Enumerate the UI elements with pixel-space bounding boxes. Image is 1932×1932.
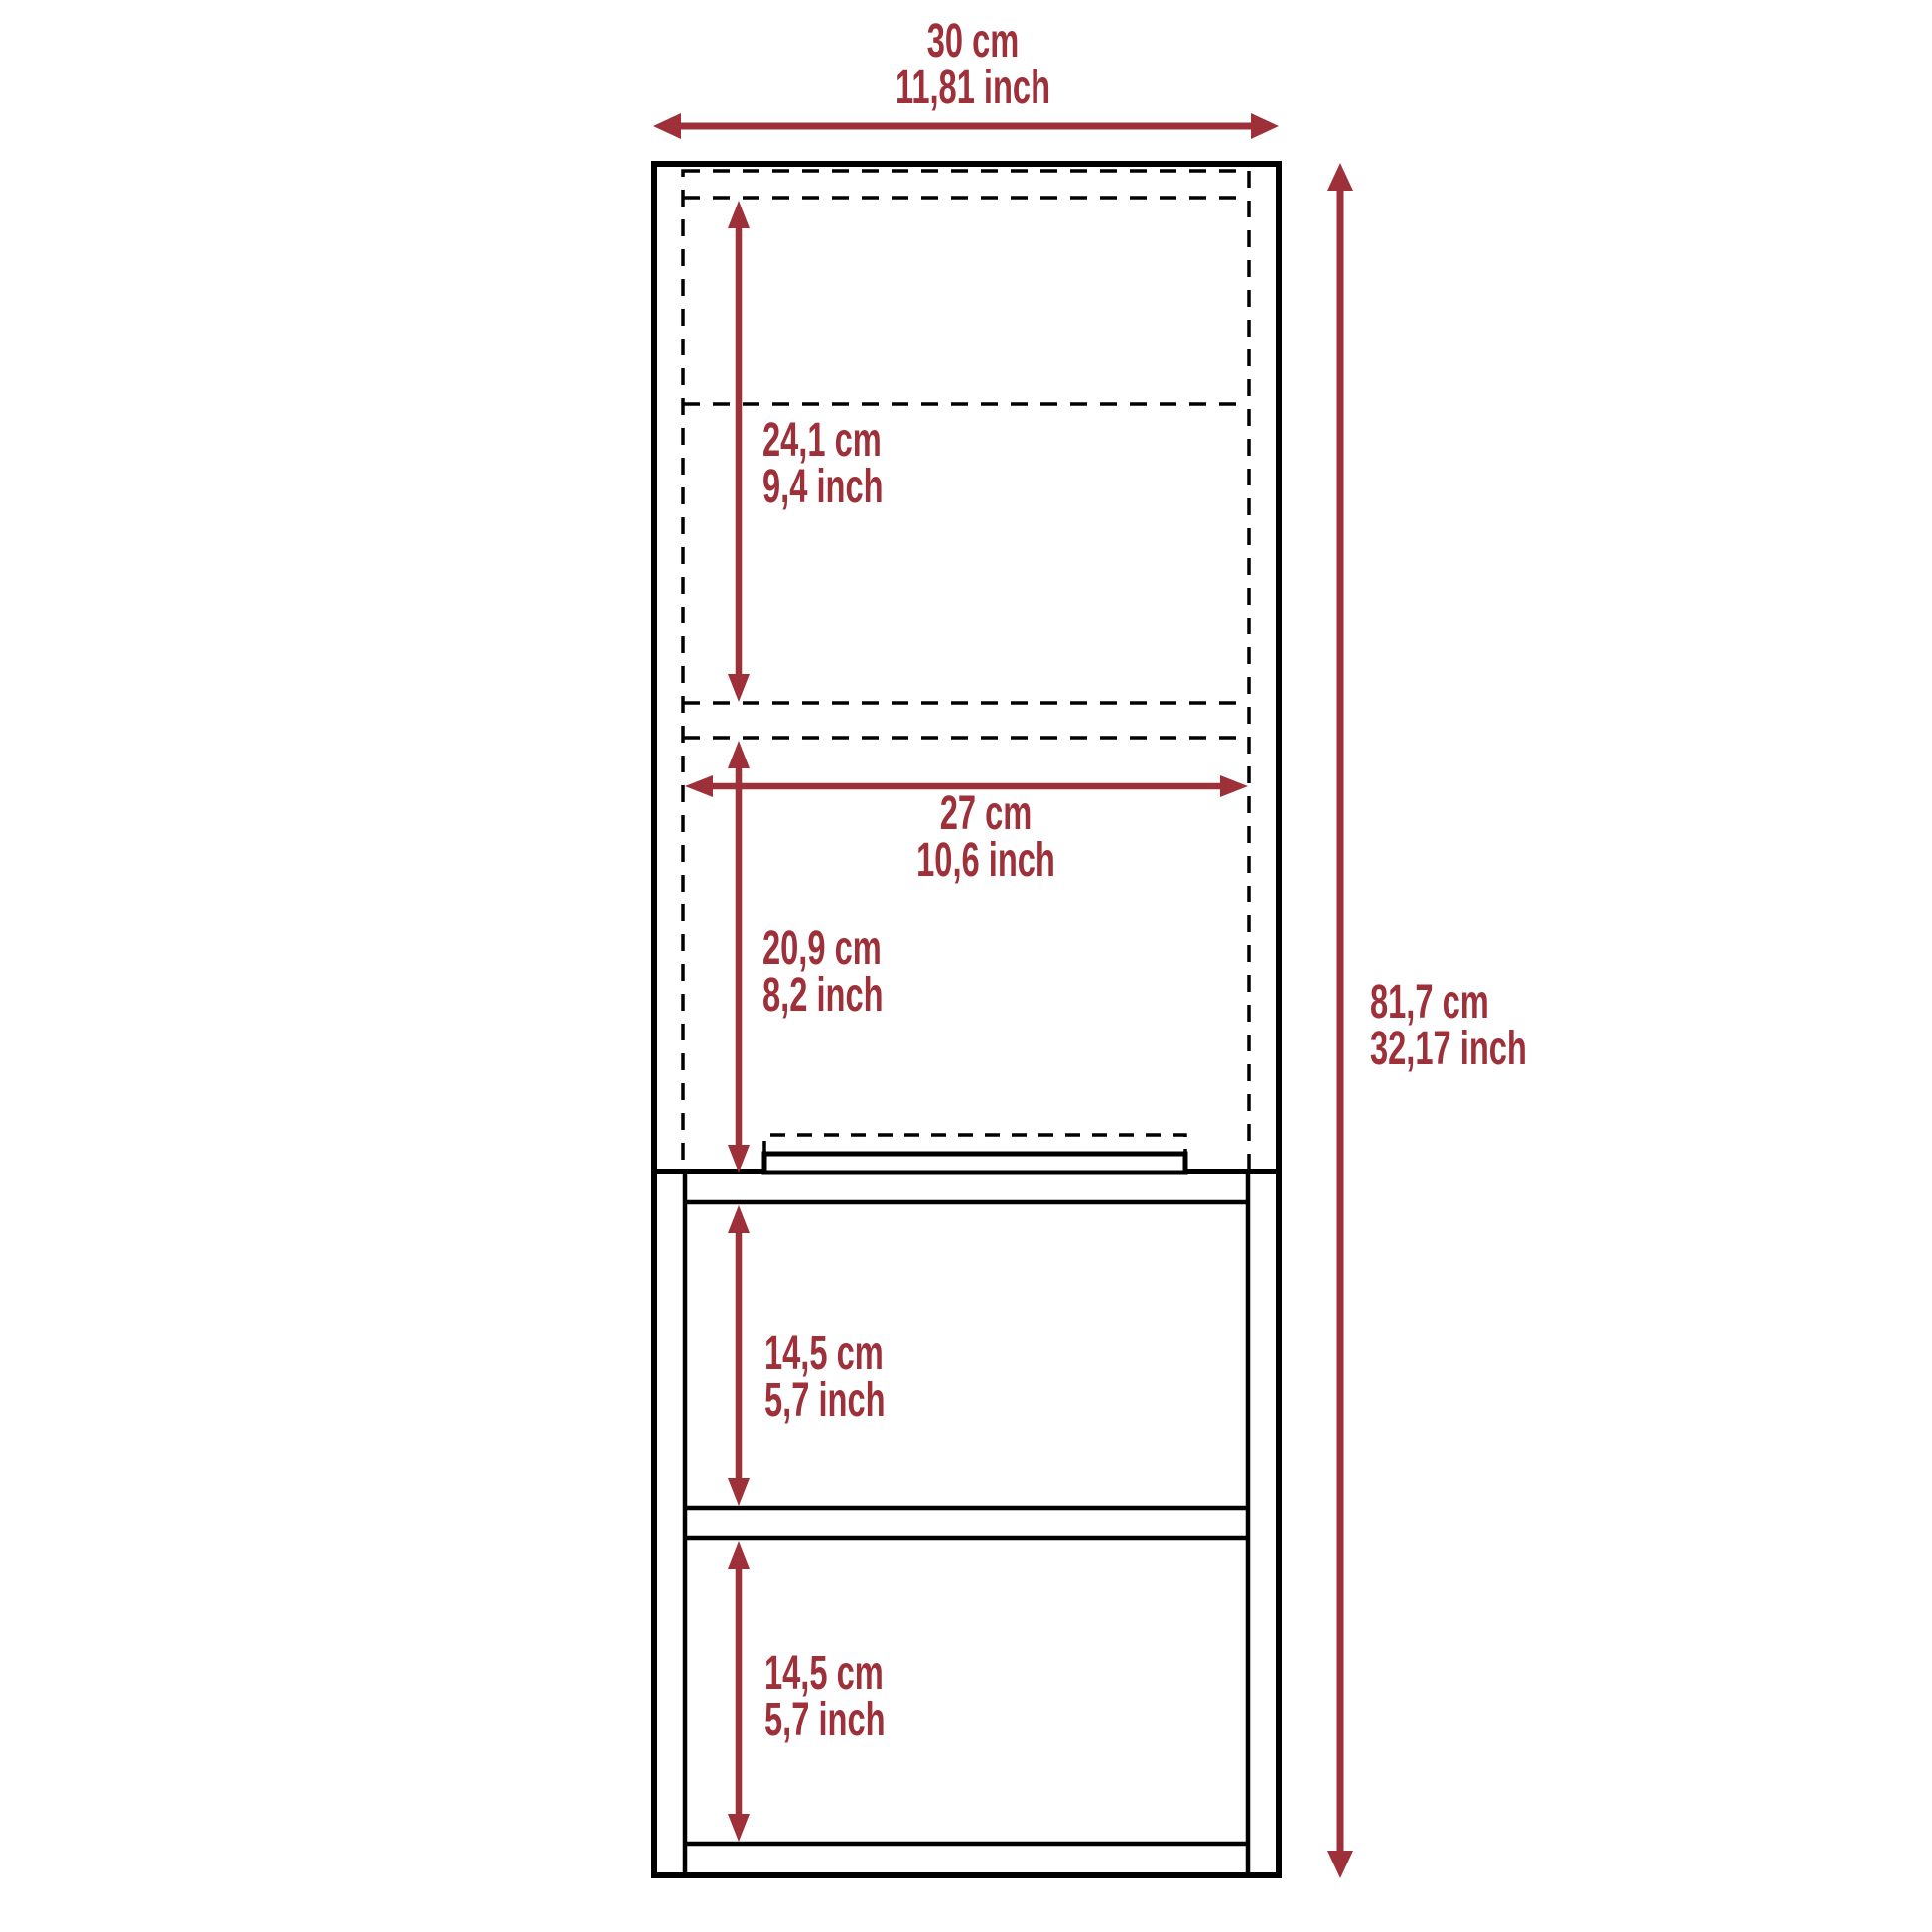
door-section-cm: 20,9 cm — [762, 925, 884, 972]
overall-width-cm: 30 cm — [896, 18, 1050, 65]
upper-shelf-inch: 5,7 inch — [764, 1377, 886, 1424]
inner-width-cm: 27 cm — [916, 790, 1055, 837]
lower-shelf-arrow — [728, 1541, 750, 1842]
overall-height-label: 81,7 cm 32,17 inch — [1370, 979, 1527, 1072]
overall-height-inch: 32,17 inch — [1370, 1026, 1527, 1072]
door-section-arrow — [728, 741, 750, 1173]
inner-width-inch: 10,6 inch — [916, 837, 1055, 884]
lower-shelf-cm: 14,5 cm — [764, 1650, 886, 1697]
upper-shelf-height-label: 14,5 cm 5,7 inch — [764, 1330, 886, 1424]
door-handle — [764, 1154, 1185, 1173]
inner-width-label: 27 cm 10,6 inch — [916, 790, 1055, 884]
upper-shelf-cm: 14,5 cm — [764, 1330, 886, 1377]
lower-shelf-inch: 5,7 inch — [764, 1697, 886, 1743]
upper-shelf-arrow — [728, 1205, 750, 1506]
width-arrow — [653, 113, 1279, 139]
door-section-height-label: 20,9 cm 8,2 inch — [762, 925, 884, 1019]
overall-height-cm: 81,7 cm — [1370, 979, 1527, 1026]
overall-width-label: 30 cm 11,81 inch — [896, 18, 1050, 111]
height-arrow — [1327, 163, 1353, 1878]
dimension-diagram: 30 cm 11,81 inch 24,1 cm 9,4 inch 27 cm … — [0, 0, 1932, 1932]
cabinet-line-drawing — [0, 0, 1932, 1932]
upper-section-height-label: 24,1 cm 9,4 inch — [762, 417, 884, 510]
door-section-inch: 8,2 inch — [762, 972, 884, 1019]
upper-section-inch: 9,4 inch — [762, 464, 884, 510]
upper-section-arrow — [728, 201, 750, 702]
upper-section-cm: 24,1 cm — [762, 417, 884, 464]
overall-width-inch: 11,81 inch — [896, 65, 1050, 111]
cabinet-structure — [654, 164, 1279, 1878]
lower-shelf-height-label: 14,5 cm 5,7 inch — [764, 1650, 886, 1743]
upper-cabinet-outline — [654, 164, 1279, 1172]
